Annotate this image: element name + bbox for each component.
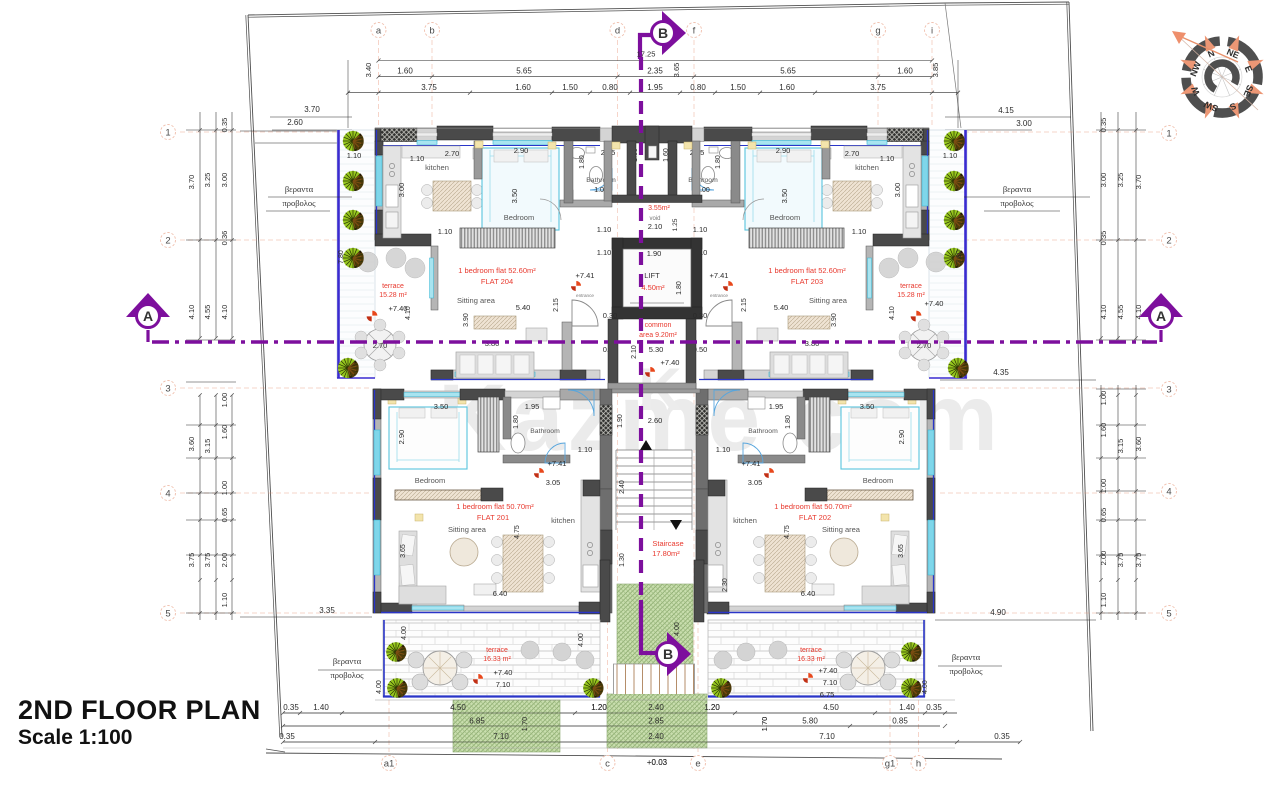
svg-text:2.10: 2.10 — [648, 222, 663, 231]
svg-text:3.60: 3.60 — [1134, 437, 1143, 452]
svg-text:1.60: 1.60 — [515, 83, 531, 92]
svg-text:1.20: 1.20 — [591, 703, 607, 712]
svg-text:2.70: 2.70 — [845, 149, 860, 158]
svg-text:4.75: 4.75 — [514, 525, 521, 539]
svg-text:d: d — [615, 25, 620, 36]
svg-text:2.90: 2.90 — [397, 430, 406, 445]
svg-text:common: common — [645, 322, 672, 329]
svg-text:1.60: 1.60 — [779, 83, 795, 92]
svg-text:3.25: 3.25 — [1116, 173, 1125, 188]
svg-text:1 bedroom flat 50.70m²: 1 bedroom flat 50.70m² — [456, 502, 534, 511]
svg-text:2.30: 2.30 — [722, 578, 729, 592]
svg-text:Bedroom: Bedroom — [415, 476, 445, 485]
svg-text:5.40: 5.40 — [516, 303, 531, 312]
svg-text:Bedroom: Bedroom — [863, 476, 893, 485]
svg-text:2.40: 2.40 — [648, 703, 664, 712]
svg-text:1.40: 1.40 — [899, 703, 915, 712]
svg-text:1.10: 1.10 — [716, 445, 731, 454]
svg-text:4.10: 4.10 — [1099, 305, 1108, 320]
svg-text:7.10: 7.10 — [823, 678, 838, 687]
svg-text:7.80: 7.80 — [338, 250, 345, 264]
svg-text:2.60: 2.60 — [648, 416, 663, 425]
svg-text:e: e — [695, 758, 700, 769]
svg-text:3: 3 — [165, 383, 170, 394]
svg-text:4.10: 4.10 — [405, 306, 412, 320]
svg-text:Scale 1:100: Scale 1:100 — [18, 726, 132, 749]
svg-text:+7.41: +7.41 — [710, 271, 729, 280]
svg-text:terrace: terrace — [486, 647, 508, 654]
svg-text:3: 3 — [1166, 384, 1171, 395]
svg-text:kitchen: kitchen — [855, 163, 879, 172]
svg-text:2.90: 2.90 — [776, 146, 791, 155]
svg-text:1.95: 1.95 — [647, 83, 663, 92]
svg-text:4.75: 4.75 — [784, 525, 791, 539]
svg-text:2.60: 2.60 — [287, 118, 303, 127]
svg-text:προβολος: προβολος — [330, 670, 364, 680]
svg-text:1.90: 1.90 — [617, 414, 624, 428]
svg-text:1.80: 1.80 — [513, 415, 520, 429]
svg-text:h: h — [916, 758, 921, 769]
svg-text:2: 2 — [165, 235, 170, 246]
svg-text:FLAT 204: FLAT 204 — [481, 277, 513, 286]
svg-text:3.00: 3.00 — [397, 183, 406, 198]
svg-text:βεραντα: βεραντα — [285, 184, 314, 194]
svg-text:g: g — [875, 25, 880, 36]
svg-text:1.10: 1.10 — [410, 154, 425, 163]
svg-text:entrance: entrance — [710, 293, 728, 298]
svg-text:3.50: 3.50 — [860, 402, 875, 411]
svg-text:3.90: 3.90 — [831, 313, 838, 327]
svg-text:3.40: 3.40 — [364, 63, 373, 78]
svg-text:1.10: 1.10 — [597, 248, 612, 257]
svg-text:0.30: 0.30 — [603, 311, 618, 320]
svg-text:A: A — [1156, 308, 1166, 324]
svg-text:0.30: 0.30 — [693, 311, 708, 320]
svg-text:1: 1 — [165, 127, 170, 138]
svg-text:kitchen: kitchen — [733, 516, 757, 525]
svg-text:0.35: 0.35 — [1099, 231, 1108, 246]
svg-text:6.40: 6.40 — [493, 589, 508, 598]
svg-text:LIFT: LIFT — [644, 271, 660, 280]
svg-text:3.50: 3.50 — [780, 189, 789, 204]
svg-text:4.55: 4.55 — [203, 305, 212, 320]
svg-text:3.50: 3.50 — [434, 402, 449, 411]
svg-text:5.65: 5.65 — [516, 67, 532, 76]
svg-text:5.80: 5.80 — [802, 717, 818, 726]
svg-text:4.50: 4.50 — [823, 703, 839, 712]
svg-text:area 9.20m²: area 9.20m² — [639, 332, 677, 339]
svg-text:A: A — [143, 308, 153, 324]
svg-text:1.50: 1.50 — [562, 83, 578, 92]
svg-text:1.10: 1.10 — [880, 154, 895, 163]
svg-text:FLAT 203: FLAT 203 — [791, 277, 823, 286]
svg-text:c: c — [605, 758, 610, 769]
svg-text:6.75: 6.75 — [820, 690, 835, 699]
svg-text:b: b — [429, 25, 434, 36]
svg-text:7.80: 7.80 — [956, 250, 963, 264]
svg-text:3.35: 3.35 — [319, 606, 335, 615]
svg-text:5: 5 — [1166, 608, 1171, 619]
svg-text:1.10: 1.10 — [693, 225, 708, 234]
svg-text:3.75: 3.75 — [870, 83, 886, 92]
svg-text:Sitting area: Sitting area — [809, 296, 848, 305]
svg-text:7.10: 7.10 — [493, 732, 509, 741]
svg-text:2: 2 — [1166, 235, 1171, 246]
svg-text:3.55m²: 3.55m² — [648, 205, 670, 212]
svg-text:1.10: 1.10 — [578, 445, 593, 454]
svg-text:3.65: 3.65 — [400, 544, 407, 558]
svg-text:4.90: 4.90 — [990, 608, 1006, 617]
svg-text:17.25: 17.25 — [637, 50, 656, 59]
svg-text:3.65: 3.65 — [672, 63, 681, 78]
svg-text:7.10: 7.10 — [819, 732, 835, 741]
svg-text:4: 4 — [165, 488, 170, 499]
svg-text:1.00: 1.00 — [220, 393, 229, 408]
svg-text:2ND FLOOR PLAN: 2ND FLOOR PLAN — [18, 695, 261, 725]
svg-text:B: B — [658, 25, 668, 41]
svg-text:2.40: 2.40 — [619, 480, 626, 494]
svg-text:i: i — [931, 25, 933, 36]
svg-text:1.10: 1.10 — [1099, 593, 1108, 608]
svg-text:1.50: 1.50 — [730, 83, 746, 92]
svg-text:+7.40: +7.40 — [494, 668, 513, 677]
svg-text:4.50m²: 4.50m² — [641, 283, 665, 292]
svg-text:16.33 m²: 16.33 m² — [483, 656, 511, 663]
svg-text:4.50: 4.50 — [450, 703, 466, 712]
svg-text:1.95: 1.95 — [769, 402, 784, 411]
svg-text:4.00: 4.00 — [401, 626, 408, 640]
svg-text:προβολος: προβολος — [1000, 198, 1034, 208]
svg-text:1 bedroom flat 52.60m²: 1 bedroom flat 52.60m² — [458, 266, 536, 275]
svg-text:4.10: 4.10 — [220, 305, 229, 320]
svg-text:f: f — [693, 25, 696, 36]
svg-text:3.65: 3.65 — [898, 544, 905, 558]
svg-text:3.70: 3.70 — [304, 105, 320, 114]
svg-text:3.60: 3.60 — [187, 437, 196, 452]
svg-text:βεραντα: βεραντα — [952, 652, 981, 662]
svg-text:1.80: 1.80 — [785, 415, 792, 429]
svg-text:προβολος: προβολος — [949, 666, 983, 676]
svg-text:1.00: 1.00 — [1099, 391, 1108, 406]
svg-text:5.65: 5.65 — [780, 67, 796, 76]
svg-text:FLAT 201: FLAT 201 — [477, 513, 509, 522]
svg-text:1.80: 1.80 — [676, 281, 683, 295]
svg-text:Sitting area: Sitting area — [457, 296, 496, 305]
svg-text:17.80m²: 17.80m² — [652, 549, 680, 558]
svg-text:βεραντα: βεραντα — [333, 656, 362, 666]
svg-text:15.28 m²: 15.28 m² — [897, 292, 925, 299]
svg-text:1.60: 1.60 — [897, 67, 913, 76]
svg-text:5.30: 5.30 — [649, 345, 664, 354]
svg-text:Sitting area: Sitting area — [448, 525, 487, 534]
svg-text:1.40: 1.40 — [313, 703, 329, 712]
svg-text:1.10: 1.10 — [438, 227, 453, 236]
svg-text:15.28 m²: 15.28 m² — [379, 292, 407, 299]
svg-text:1.25: 1.25 — [672, 218, 679, 231]
svg-text:3.75: 3.75 — [421, 83, 437, 92]
svg-text:2.00: 2.00 — [1099, 551, 1108, 566]
svg-text:+7.40: +7.40 — [661, 358, 680, 367]
svg-text:B: B — [663, 646, 673, 662]
svg-text:1.90: 1.90 — [647, 249, 662, 258]
svg-text:g1: g1 — [885, 758, 896, 769]
svg-text:1.10: 1.10 — [220, 593, 229, 608]
svg-text:3.05: 3.05 — [546, 478, 561, 487]
svg-text:3.00: 3.00 — [893, 183, 902, 198]
svg-text:3.00: 3.00 — [1099, 173, 1108, 188]
svg-text:1.30: 1.30 — [619, 553, 626, 567]
svg-text:3.70: 3.70 — [1134, 175, 1143, 190]
svg-text:1.60: 1.60 — [220, 425, 229, 440]
svg-text:4: 4 — [1166, 486, 1171, 497]
svg-text:+7.41: +7.41 — [548, 459, 567, 468]
svg-text:4.00: 4.00 — [674, 622, 681, 636]
svg-text:3.90: 3.90 — [463, 313, 470, 327]
svg-text:3.50: 3.50 — [510, 189, 519, 204]
svg-text:1.80: 1.80 — [715, 155, 722, 169]
svg-text:0.35: 0.35 — [926, 703, 942, 712]
svg-text:1.60: 1.60 — [397, 67, 413, 76]
svg-text:4.00: 4.00 — [376, 680, 383, 694]
svg-text:3.70: 3.70 — [187, 175, 196, 190]
svg-text:1 bedroom flat 52.60m²: 1 bedroom flat 52.60m² — [768, 266, 846, 275]
svg-text:16.33 m²: 16.33 m² — [797, 656, 825, 663]
svg-text:4.10: 4.10 — [1134, 305, 1143, 320]
svg-text:2.35: 2.35 — [647, 67, 663, 76]
svg-text:a1: a1 — [384, 758, 395, 769]
svg-text:2.85: 2.85 — [648, 717, 664, 726]
svg-text:Staircase: Staircase — [652, 539, 683, 548]
svg-text:0.36: 0.36 — [220, 231, 229, 246]
svg-text:2.15: 2.15 — [741, 298, 748, 312]
svg-text:5: 5 — [165, 608, 170, 619]
svg-text:4.15: 4.15 — [998, 106, 1014, 115]
svg-text:0.35: 0.35 — [994, 732, 1010, 741]
svg-text:4.10: 4.10 — [889, 306, 896, 320]
svg-text:1.20: 1.20 — [704, 703, 720, 712]
svg-text:0.35: 0.35 — [283, 703, 299, 712]
svg-text:3.15: 3.15 — [1116, 439, 1125, 454]
svg-text:Bathroom: Bathroom — [530, 428, 560, 435]
svg-text:4.10: 4.10 — [187, 305, 196, 320]
svg-text:1.95: 1.95 — [525, 402, 540, 411]
svg-text:terrace: terrace — [800, 647, 822, 654]
svg-text:kitchen: kitchen — [551, 516, 575, 525]
svg-text:terrace: terrace — [382, 283, 404, 290]
svg-text:2.90: 2.90 — [897, 430, 906, 445]
svg-text:Bedroom: Bedroom — [770, 213, 800, 222]
svg-text:Bathroom: Bathroom — [748, 428, 778, 435]
svg-text:1.70: 1.70 — [760, 717, 769, 732]
svg-text:βεραντα: βεραντα — [1003, 184, 1032, 194]
svg-text:5.40: 5.40 — [774, 303, 789, 312]
svg-text:Bedroom: Bedroom — [504, 213, 534, 222]
svg-text:7.10: 7.10 — [496, 680, 511, 689]
svg-text:3.00: 3.00 — [1016, 119, 1032, 128]
svg-text:4.55: 4.55 — [1116, 305, 1125, 320]
svg-text:2.10: 2.10 — [631, 345, 638, 359]
svg-text:4.00: 4.00 — [922, 680, 929, 694]
svg-text:1.10: 1.10 — [347, 151, 362, 160]
svg-text:+7.41: +7.41 — [742, 459, 761, 468]
svg-text:2.90: 2.90 — [514, 146, 529, 155]
svg-text:0.85: 0.85 — [892, 717, 908, 726]
svg-text:1 bedroom flat 50.70m²: 1 bedroom flat 50.70m² — [774, 502, 852, 511]
svg-text:terrace: terrace — [900, 283, 922, 290]
svg-text:1.80: 1.80 — [579, 155, 586, 169]
svg-text:1.10: 1.10 — [943, 151, 958, 160]
svg-text:6.85: 6.85 — [469, 717, 485, 726]
svg-text:+7.40: +7.40 — [819, 666, 838, 675]
svg-text:3.85: 3.85 — [931, 63, 940, 78]
svg-text:+7.41: +7.41 — [576, 271, 595, 280]
svg-text:entrance: entrance — [576, 293, 594, 298]
svg-text:1.10: 1.10 — [852, 227, 867, 236]
svg-text:0.80: 0.80 — [690, 83, 706, 92]
svg-text:1.10: 1.10 — [597, 225, 612, 234]
svg-text:3.15: 3.15 — [203, 439, 212, 454]
svg-text:FLAT 202: FLAT 202 — [799, 513, 831, 522]
svg-text:1.70: 1.70 — [520, 717, 529, 732]
svg-text:3.05: 3.05 — [748, 478, 763, 487]
svg-text:+7.40: +7.40 — [925, 299, 944, 308]
svg-text:2.70: 2.70 — [445, 149, 460, 158]
svg-text:a: a — [376, 25, 382, 36]
svg-text:3.00: 3.00 — [220, 173, 229, 188]
svg-text:προβολος: προβολος — [282, 198, 316, 208]
svg-text:kitchen: kitchen — [425, 163, 449, 172]
svg-text:3.25: 3.25 — [203, 173, 212, 188]
svg-text:+0.03: +0.03 — [647, 758, 668, 767]
svg-text:Sitting area: Sitting area — [822, 525, 861, 534]
svg-text:2.15: 2.15 — [553, 298, 560, 312]
svg-text:0.35: 0.35 — [279, 732, 295, 741]
svg-text:6.40: 6.40 — [801, 589, 816, 598]
svg-text:2.40: 2.40 — [648, 732, 664, 741]
svg-text:4.00: 4.00 — [578, 633, 585, 647]
svg-text:0.80: 0.80 — [602, 83, 618, 92]
svg-text:1: 1 — [1166, 128, 1171, 139]
